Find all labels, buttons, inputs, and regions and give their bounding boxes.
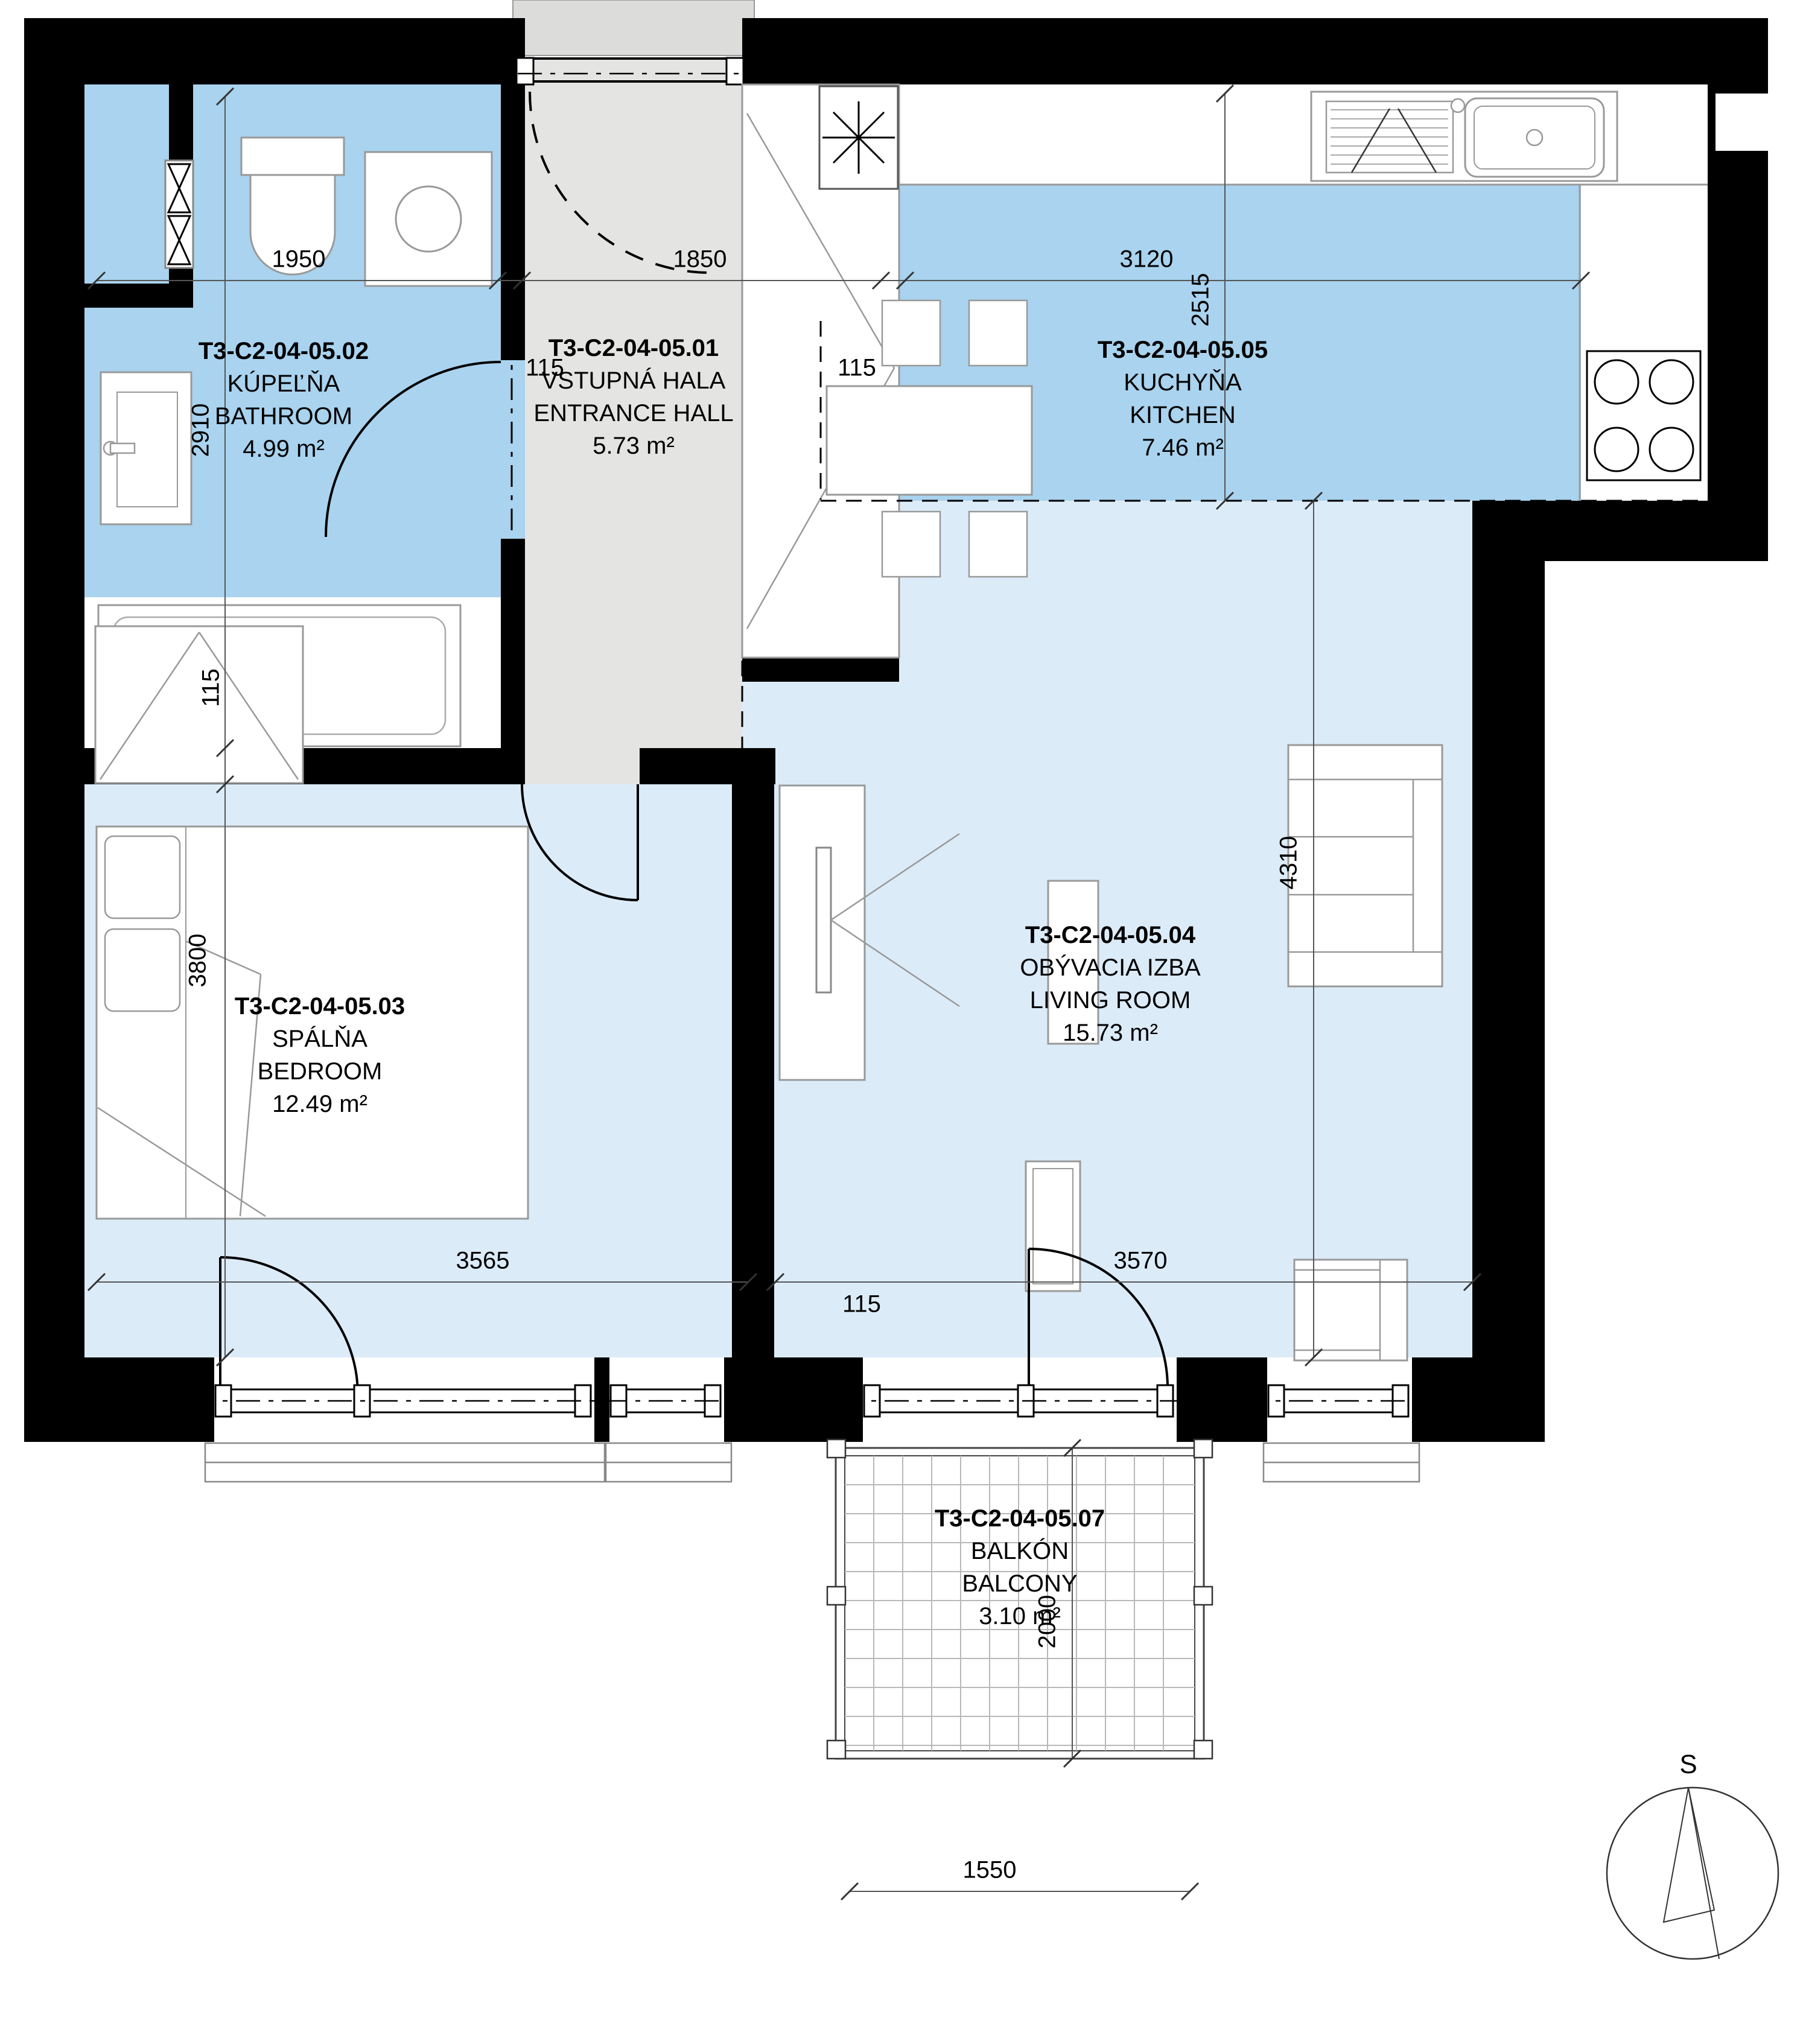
room-name-sk: BALKÓN xyxy=(935,1535,1105,1567)
room-name-en: LIVING ROOM xyxy=(1020,984,1200,1017)
kitchen-label: T3-C2-04-05.05 KUCHYŇA KITCHEN 7.46 m² xyxy=(1098,334,1268,464)
room-name-sk: OBÝVACIA IZBA xyxy=(1020,951,1200,984)
room-code: T3-C2-04-05.02 xyxy=(199,335,369,367)
wall-bathroom-hall-lower xyxy=(501,539,525,784)
dim-balcony-width: 1550 xyxy=(963,1857,1017,1884)
floor-plan: T3-C2-04-05.02 KÚPEĽŇA BATHROOM 4.99 m² … xyxy=(0,0,1803,2044)
wall-right-lower xyxy=(1472,501,1545,1442)
washing-machine xyxy=(365,152,492,286)
chair xyxy=(969,300,1027,366)
dim-bedroom-width: 3565 xyxy=(456,1248,510,1275)
wall-bottom-1 xyxy=(24,1357,214,1442)
balcony-label: T3-C2-04-05.07 BALKÓN BALCONY 3.10 m² xyxy=(935,1502,1105,1633)
wall-step xyxy=(1545,501,1768,561)
room-name-sk: KÚPEĽŇA xyxy=(199,367,369,400)
bedroom-label: T3-C2-04-05.03 SPÁLŇA BEDROOM 12.49 m² xyxy=(235,990,405,1120)
living-room-label: T3-C2-04-05.04 OBÝVACIA IZBA LIVING ROOM… xyxy=(1020,919,1200,1049)
chair xyxy=(882,300,940,366)
entrance-landing xyxy=(513,0,754,56)
wall-bottom-5 xyxy=(1412,1357,1545,1442)
window-sills xyxy=(205,1443,1419,1482)
kitchen-sink xyxy=(1311,92,1617,181)
room-area: 3.10 m² xyxy=(935,1600,1105,1633)
dim-living-height: 4310 xyxy=(1276,836,1303,890)
room-name-en: BALCONY xyxy=(935,1567,1105,1600)
wall-bottom-3 xyxy=(724,1357,863,1442)
side-table xyxy=(1026,1161,1080,1291)
dim-bedroom-height: 3800 xyxy=(185,934,212,988)
dim-wall-115-d: 115 xyxy=(842,1291,881,1318)
pillow xyxy=(105,836,180,918)
room-area: 12.49 m² xyxy=(235,1088,405,1120)
tv xyxy=(816,848,831,992)
wall-hall-bedroom xyxy=(640,748,775,784)
wall-left xyxy=(24,18,84,1442)
room-area: 7.46 m² xyxy=(1098,431,1268,464)
dim-wall-115-a: 115 xyxy=(526,355,564,382)
room-name-en: ENTRANCE HALL xyxy=(533,397,733,430)
wall-bathroom-hall-upper xyxy=(501,84,525,360)
pillow xyxy=(105,929,180,1011)
room-code: T3-C2-04-05.03 xyxy=(235,990,405,1023)
dim-wall-115-b: 115 xyxy=(838,355,876,382)
room-code: T3-C2-04-05.07 xyxy=(935,1502,1105,1535)
room-name-en: BEDROOM xyxy=(235,1055,405,1088)
armchair xyxy=(1294,1260,1407,1360)
dim-wall-115-c: 115 xyxy=(198,668,225,707)
bedroom-door-gap xyxy=(525,748,640,784)
dim-kitchen-width: 3120 xyxy=(1120,246,1174,273)
cooktop xyxy=(1587,351,1700,480)
compass xyxy=(1607,1788,1778,1959)
shaft-top-right xyxy=(1716,94,1768,151)
room-code: T3-C2-04-05.04 xyxy=(1020,919,1200,951)
entrance-hall-label: T3-C2-04-05.01 VSTUPNÁ HALA ENTRANCE HAL… xyxy=(533,332,733,462)
fridge-icon xyxy=(819,86,898,189)
chair xyxy=(882,512,940,577)
bathroom-label: T3-C2-04-05.02 KÚPEĽŇA BATHROOM 4.99 m² xyxy=(199,335,369,465)
vent-icon xyxy=(165,160,193,268)
room-code: T3-C2-04-05.05 xyxy=(1098,334,1268,366)
wall-closet-bottom xyxy=(742,658,899,682)
wall-shaft-bottom xyxy=(84,284,193,308)
bathroom-sink xyxy=(101,372,191,524)
room-name-sk: KUCHYŇA xyxy=(1098,366,1268,399)
room-name-sk: SPÁLŇA xyxy=(235,1023,405,1055)
room-area: 15.73 m² xyxy=(1020,1017,1200,1049)
wall-top-right xyxy=(742,18,1768,84)
dim-balcony-depth: 2000 xyxy=(1034,1595,1061,1649)
dim-hall-width: 1850 xyxy=(673,246,727,273)
wall-bottom-2 xyxy=(594,1357,609,1442)
room-area: 4.99 m² xyxy=(199,433,369,465)
dim-living-width: 3570 xyxy=(1114,1248,1168,1275)
wall-bedroom-living xyxy=(732,784,774,1357)
wall-bottom-4 xyxy=(1177,1357,1267,1442)
wall-top-left xyxy=(24,18,525,84)
room-area: 5.73 m² xyxy=(533,430,733,462)
compass-north-label: S xyxy=(1679,1750,1697,1780)
chair xyxy=(969,512,1027,577)
dim-bathroom-height: 2910 xyxy=(188,404,215,457)
room-name-en: BATHROOM xyxy=(199,400,369,433)
sofa xyxy=(1288,745,1442,986)
dining-table xyxy=(827,386,1032,495)
dim-kitchen-depth: 2515 xyxy=(1188,273,1215,327)
dim-bathroom-width: 1950 xyxy=(272,246,326,273)
bathroom-door-gap xyxy=(501,360,525,539)
room-name-en: KITCHEN xyxy=(1098,399,1268,431)
